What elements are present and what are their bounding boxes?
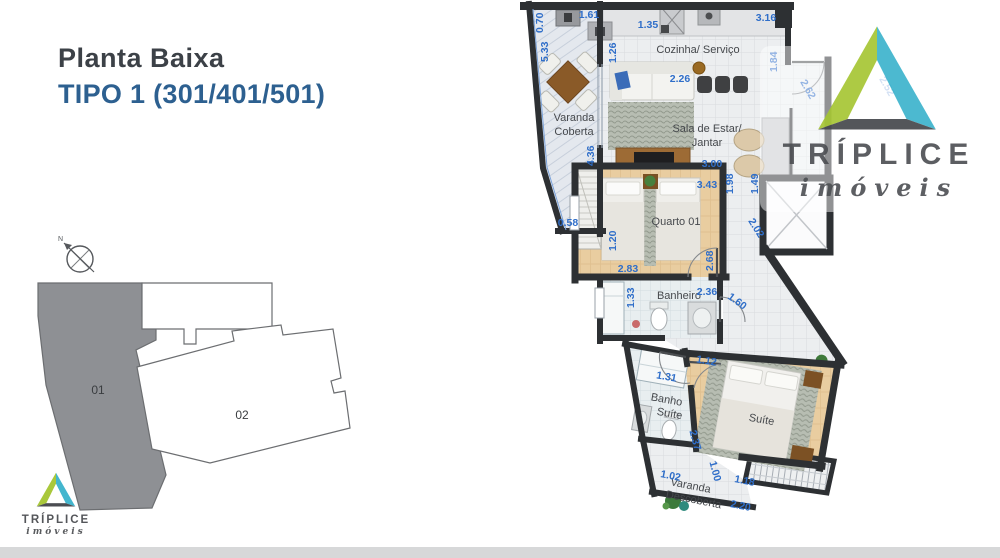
- triplice-logo-icon: [816, 24, 938, 134]
- page-subtitle: TIPO 1 (301/401/501): [58, 80, 325, 110]
- dim-quarto-bottom: 2.83: [618, 263, 639, 275]
- dim-varanda-bottom: 0.58: [558, 217, 579, 229]
- window-banheiro: [595, 288, 604, 318]
- dim-banheiro-left: 1.33: [625, 287, 637, 308]
- dim-quarto-left: 1.20: [607, 230, 619, 251]
- stove-icon: [660, 6, 684, 34]
- brand-name: TRÍPLICE: [760, 138, 998, 172]
- dim-quarto-top: 3.43: [697, 179, 718, 191]
- dim-kitchen-top-3: 3.16: [756, 12, 777, 24]
- dim-varanda-left: 5.33: [539, 41, 551, 62]
- building-02-label: 02: [235, 408, 249, 422]
- dim-kitchen-top-1: 1.61: [579, 9, 600, 21]
- dim-varanda-top: 0.70: [534, 12, 546, 33]
- compass-icon: N: [58, 236, 94, 272]
- bar-stools: [697, 76, 748, 93]
- brand-tagline: imóveis: [760, 173, 998, 202]
- sink2-icon: [698, 8, 720, 25]
- dim-kitchen-left: 1.26: [607, 42, 619, 63]
- north-label: N: [58, 236, 63, 243]
- label-varanda-coberta: Varanda: [554, 112, 596, 124]
- label-banheiro: Banheiro: [657, 290, 701, 302]
- title-block: Planta Baixa TIPO 1 (301/401/501): [58, 44, 325, 109]
- brand-watermark: TRÍPLICE imóveis: [760, 46, 998, 212]
- footer-strip: [0, 547, 1000, 558]
- dim-banheiro-width: 2.36: [697, 286, 718, 298]
- label-varanda-coberta-2: Coberta: [554, 126, 594, 138]
- dim-quarto-door: 2.68: [704, 250, 716, 271]
- label-quarto: Quarto 01: [652, 216, 701, 228]
- label-sala: Sala de Estar/: [672, 123, 742, 135]
- dim-varandad-bottom: 2.20: [729, 498, 752, 514]
- label-sala-2: Jantar: [692, 137, 723, 149]
- building-01-label: 01: [91, 383, 105, 397]
- brand-tagline-small: imóveis: [12, 527, 100, 537]
- page: Planta Baixa TIPO 1 (301/401/501) N 01 0…: [0, 0, 1000, 558]
- dim-kitchen-top-2: 1.35: [638, 19, 659, 31]
- dim-sala-right: 1.98: [724, 173, 736, 194]
- page-title: Planta Baixa: [58, 44, 325, 74]
- label-cozinha: Cozinha/ Serviço: [656, 44, 739, 56]
- triplice-logo-small-icon: [36, 472, 76, 508]
- brand-name-small: TRÍPLICE: [12, 514, 100, 526]
- plant-pot-icon: [693, 62, 705, 74]
- building-02-shape: [137, 325, 350, 463]
- brand-logo-small: TRÍPLICE imóveis: [12, 472, 100, 537]
- dim-sala-width: 3.00: [702, 158, 723, 170]
- dim-varanda-right: 4.36: [585, 145, 597, 166]
- dim-sala-top: 2.26: [670, 73, 691, 85]
